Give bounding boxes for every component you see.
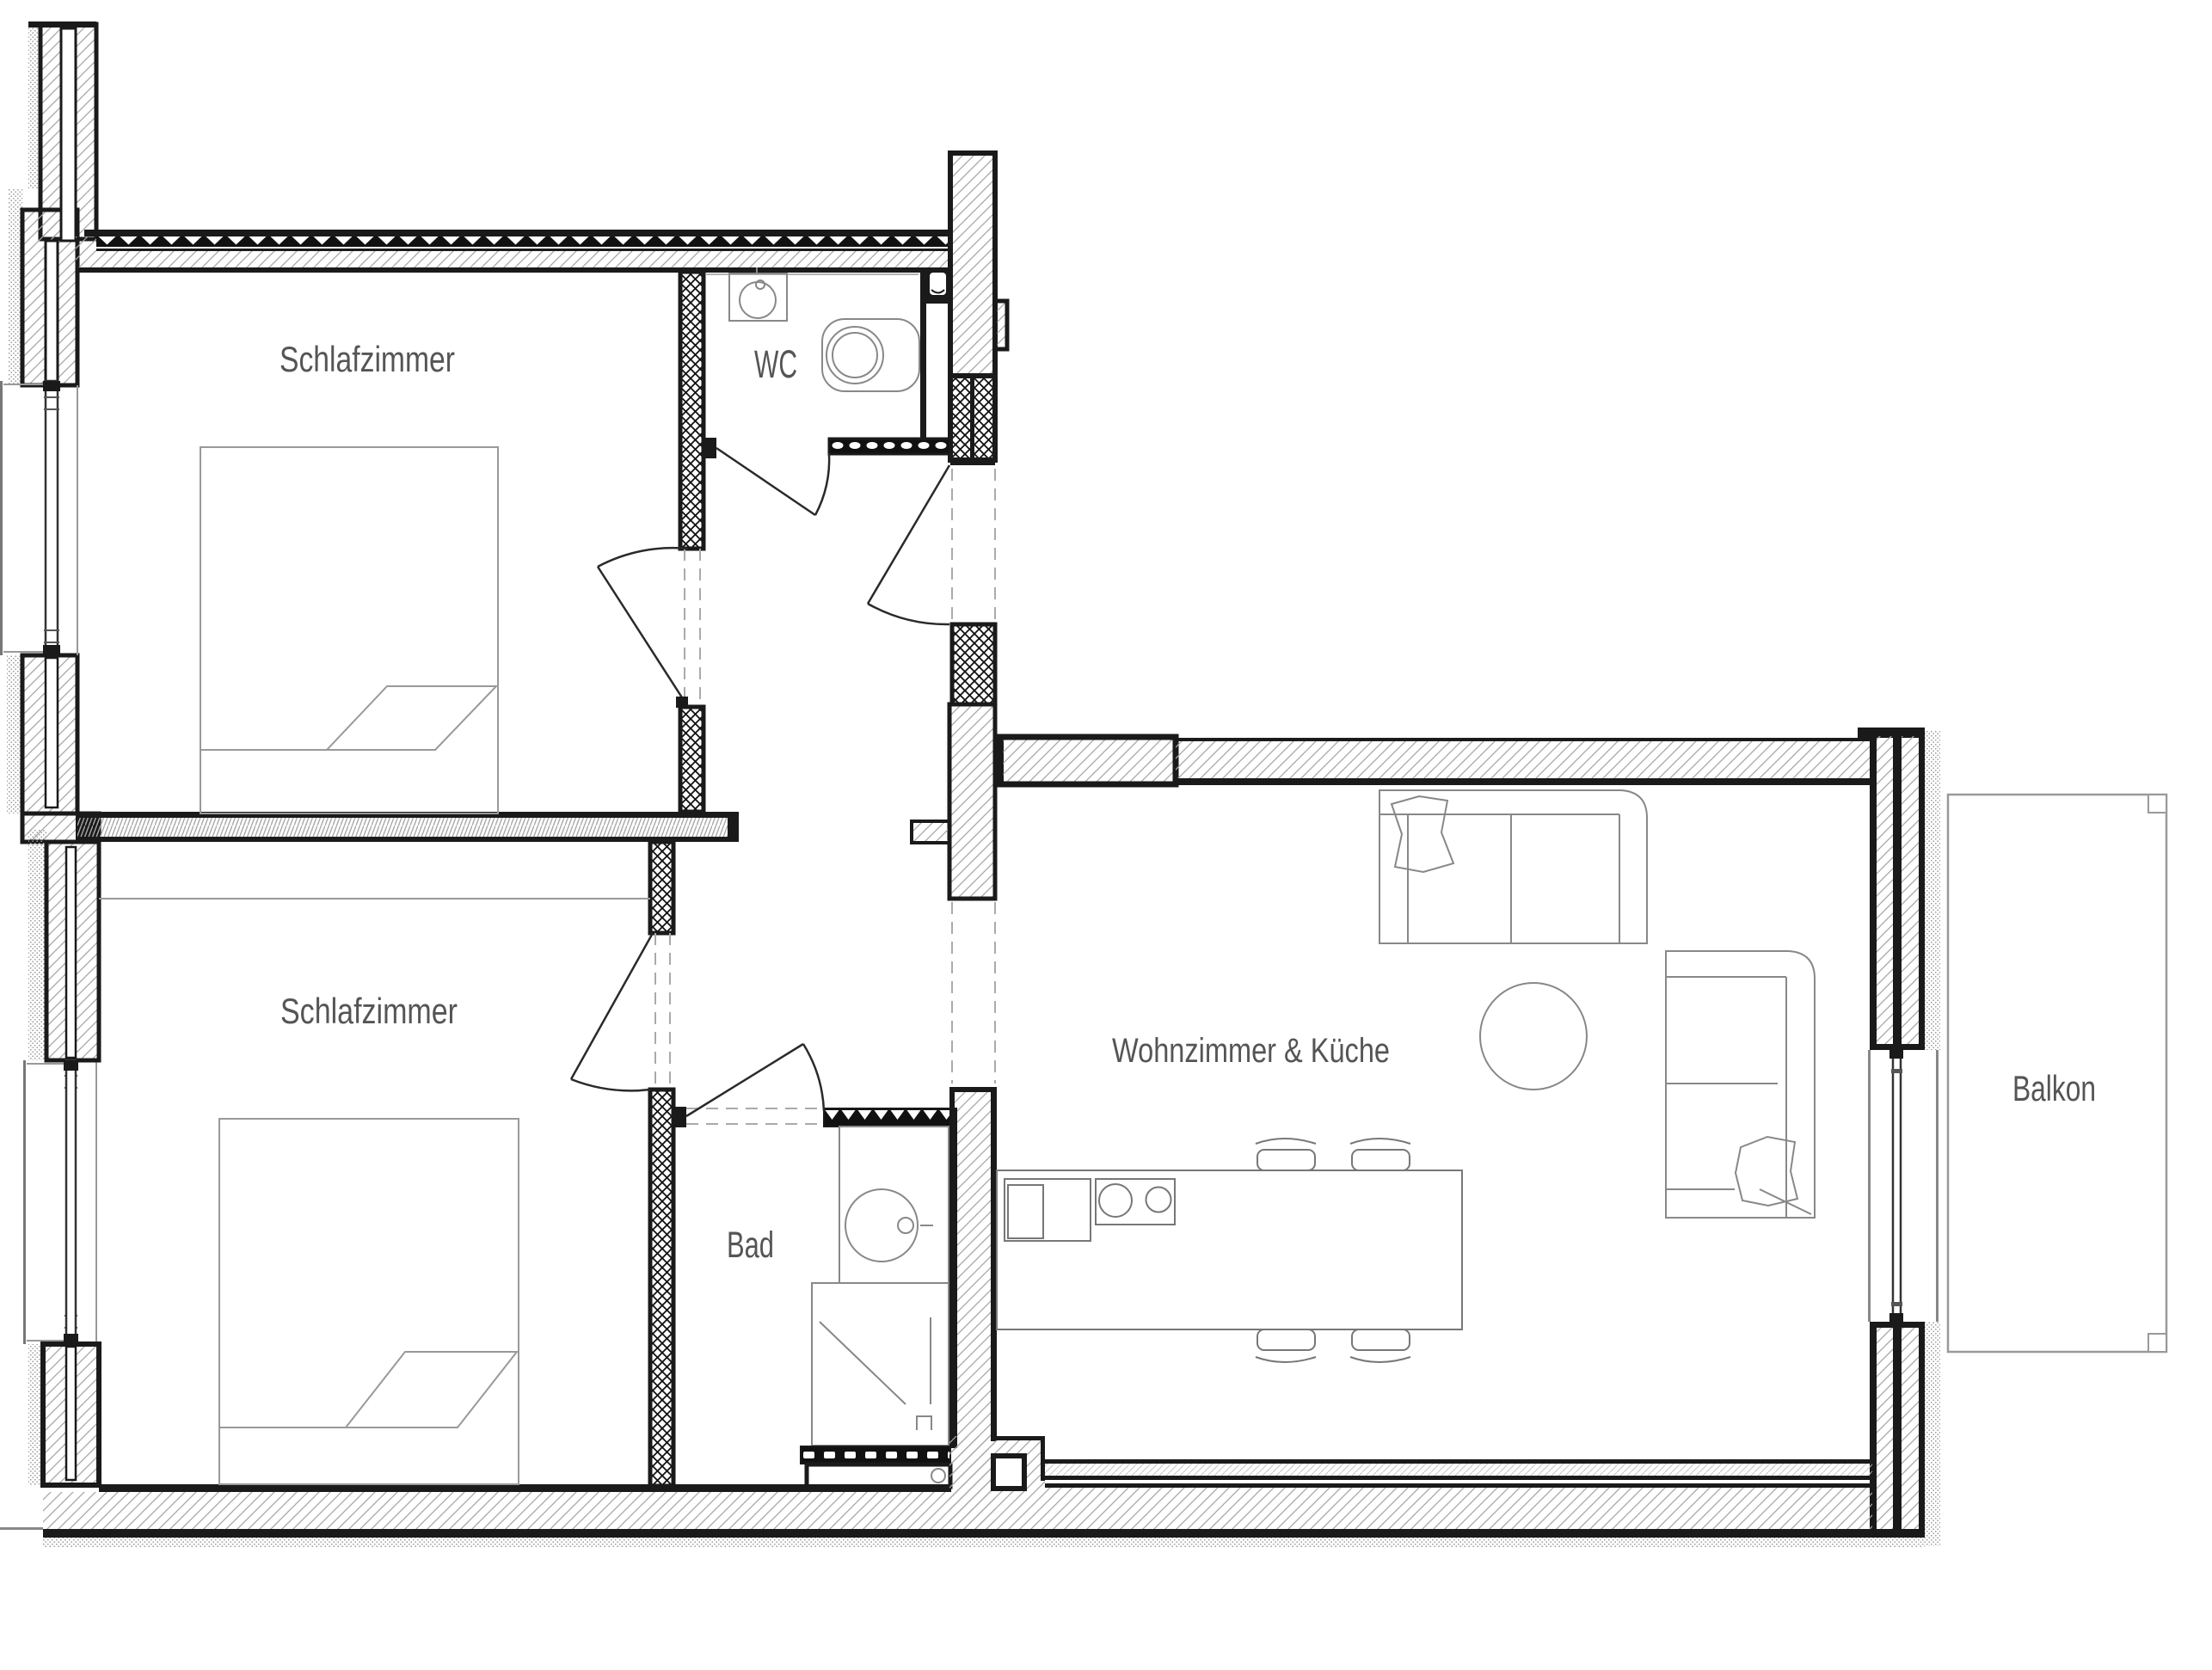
svg-text:Schlafzimmer: Schlafzimmer	[280, 991, 458, 1031]
svg-text:Schlafzimmer: Schlafzimmer	[280, 339, 455, 379]
svg-text:WC: WC	[754, 342, 797, 386]
svg-text:Balkon: Balkon	[2012, 1068, 2096, 1108]
svg-text:Wohnzimmer & Küche: Wohnzimmer & Küche	[1112, 1032, 1390, 1070]
svg-text:Bad: Bad	[727, 1225, 774, 1266]
